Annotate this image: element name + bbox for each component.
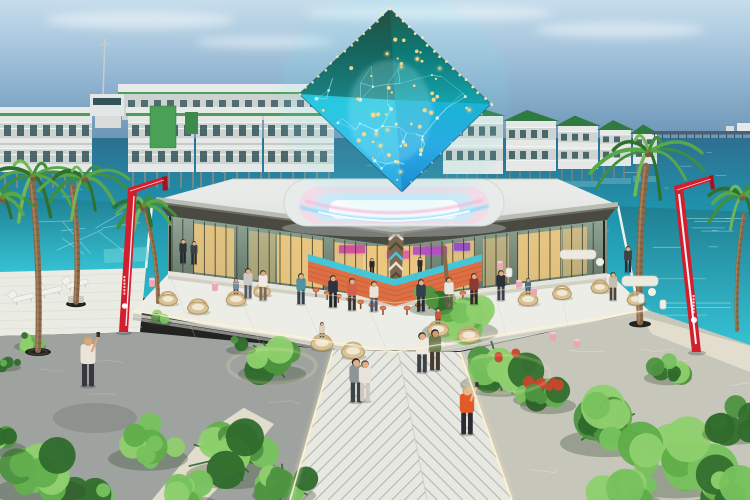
resort-render-image — [0, 0, 750, 500]
scene — [0, 0, 750, 500]
crystal-sculpture — [280, 0, 510, 214]
